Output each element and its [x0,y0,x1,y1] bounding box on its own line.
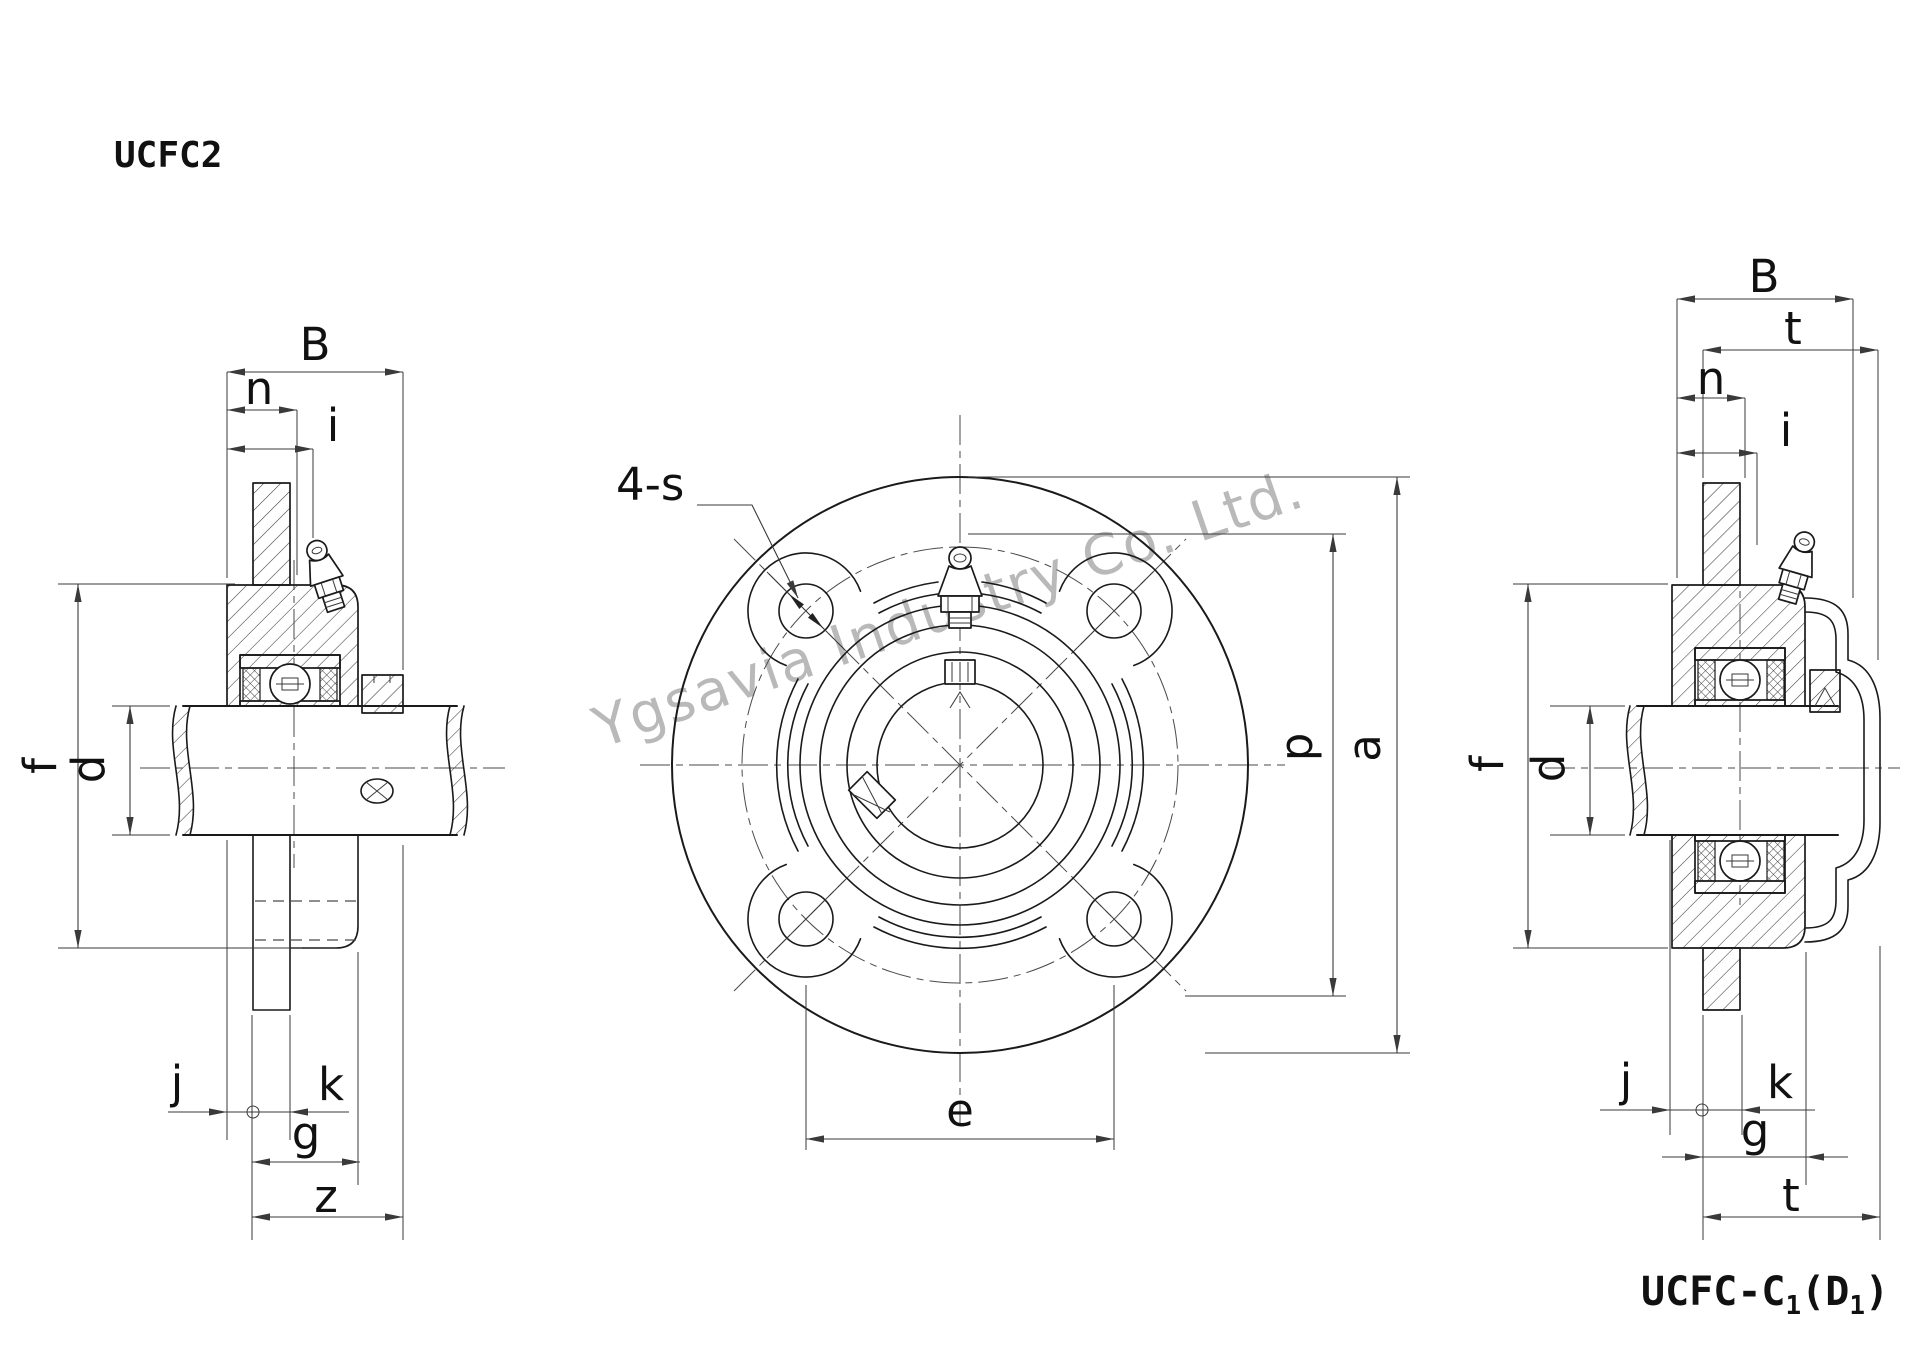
bearing-seal [1698,841,1715,881]
left-section-view: B n i f d j k g z [14,318,505,1240]
left-lower-outline [253,835,358,1010]
dim-label-i-right: i [1780,404,1793,457]
right-housing-section [1672,483,1840,1010]
caption-part3: ) [1865,1269,1889,1315]
dim-label-j-right: j [1619,1054,1633,1107]
left-dimensions [58,372,403,1240]
left-housing-section [227,483,403,803]
technical-drawing: Ygsavia Industry Co. Ltd. UCFC2 [0,0,1919,1356]
dim-label-e: e [946,1084,974,1137]
dim-label-k-left: k [318,1058,344,1111]
bearing-seal [243,668,260,701]
dim-label-p: p [1270,733,1323,762]
retainer-detail [1810,670,1840,712]
locking-collar [362,675,403,713]
dim-label-f-right: f [1461,755,1514,772]
dim-label-t-top-right: t [1784,302,1802,355]
bearing-seal [320,668,337,701]
variant-caption: UCFC-C1(D1) [1641,1269,1889,1321]
dim-label-t-bottom-right: t [1782,1169,1800,1222]
dim-label-a: a [1338,734,1391,762]
shaft-right-view [1627,706,1838,835]
caption-sub1: 1 [1786,1291,1802,1321]
bolt-holes-label: 4-s [616,458,684,511]
bearing-seal [1698,660,1715,700]
dim-label-d-left: d [62,755,115,784]
bearing-seal [1767,660,1784,700]
set-screw-front [849,772,896,819]
end-cover [1805,598,1880,942]
dim-label-i-left: i [327,399,340,452]
dim-label-n-left: n [245,362,274,415]
caption-part2: (D [1801,1269,1849,1315]
dim-label-f-left: f [14,757,67,774]
drawing-page: Ygsavia Industry Co. Ltd. UCFC2 [0,0,1919,1356]
dim-label-n-right: n [1697,352,1726,405]
caption-sub2: 1 [1849,1291,1865,1321]
dim-label-z-left: z [314,1170,338,1223]
dim-label-g-right: g [1741,1104,1770,1157]
right-section-view: B t n i f d j k g t [1461,250,1900,1240]
bearing-seal [1767,841,1784,881]
dim-label-B-right: B [1749,250,1780,303]
dim-label-d-right: d [1522,754,1575,783]
dim-label-g-left: g [292,1107,321,1160]
dim-label-k-right: k [1767,1056,1793,1109]
dim-label-j-left: j [170,1056,184,1109]
page-title: UCFC2 [114,135,222,176]
caption-part1: UCFC-C [1641,1269,1786,1315]
dim-label-B-left: B [300,318,331,371]
shaft-left-view [173,706,468,835]
